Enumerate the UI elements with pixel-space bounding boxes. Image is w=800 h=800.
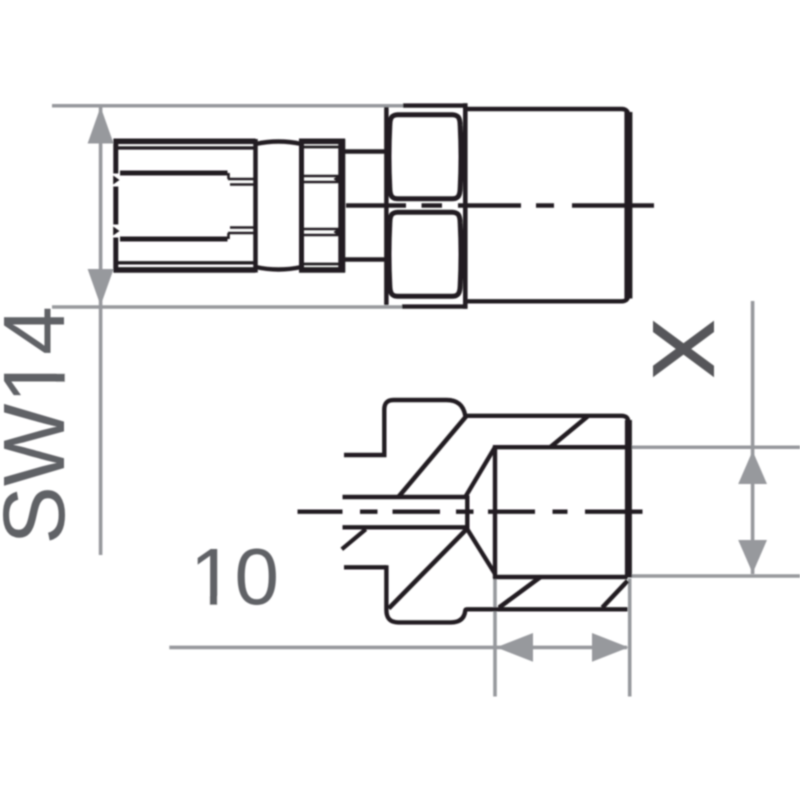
svg-text:10: 10 xyxy=(190,532,279,621)
svg-text:SW14: SW14 xyxy=(0,306,83,544)
